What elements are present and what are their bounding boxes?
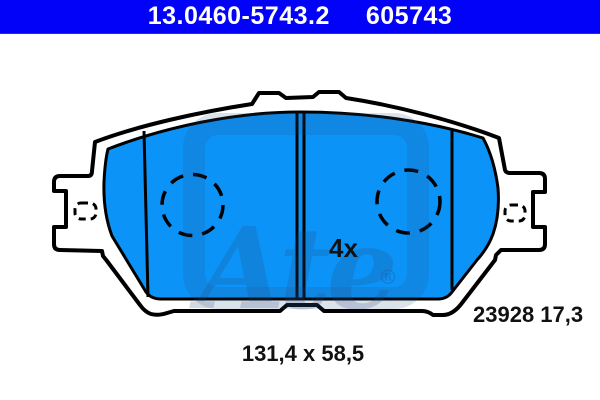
pad-reference-label: 23928 17,3	[473, 302, 583, 327]
registered-mark: ®	[378, 265, 398, 289]
ate-watermark-text: Ate	[189, 204, 394, 335]
brake-pad-datasheet: 13.0460-5743.2 605743 Ate ® 4x 23928 17,…	[0, 0, 600, 400]
dimensions-label: 131,4 x 58,5	[242, 341, 364, 366]
brake-pad-drawing: Ate ® 4x 23928 17,3 131,4 x 58,5	[0, 0, 600, 400]
quantity-label: 4x	[329, 233, 358, 263]
